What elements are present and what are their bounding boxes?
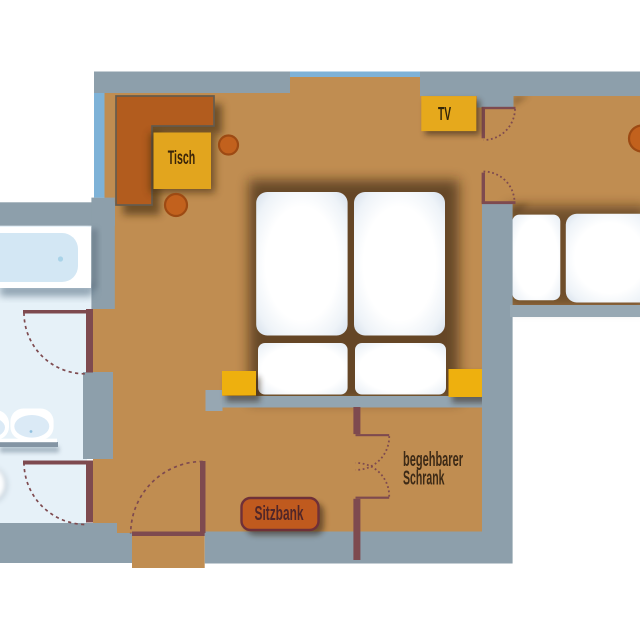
svg-text:Sitzbank: Sitzbank xyxy=(255,503,305,525)
svg-text:Schrank: Schrank xyxy=(403,467,445,490)
svg-text:TV: TV xyxy=(438,103,451,124)
svg-text:Tisch: Tisch xyxy=(168,147,196,169)
